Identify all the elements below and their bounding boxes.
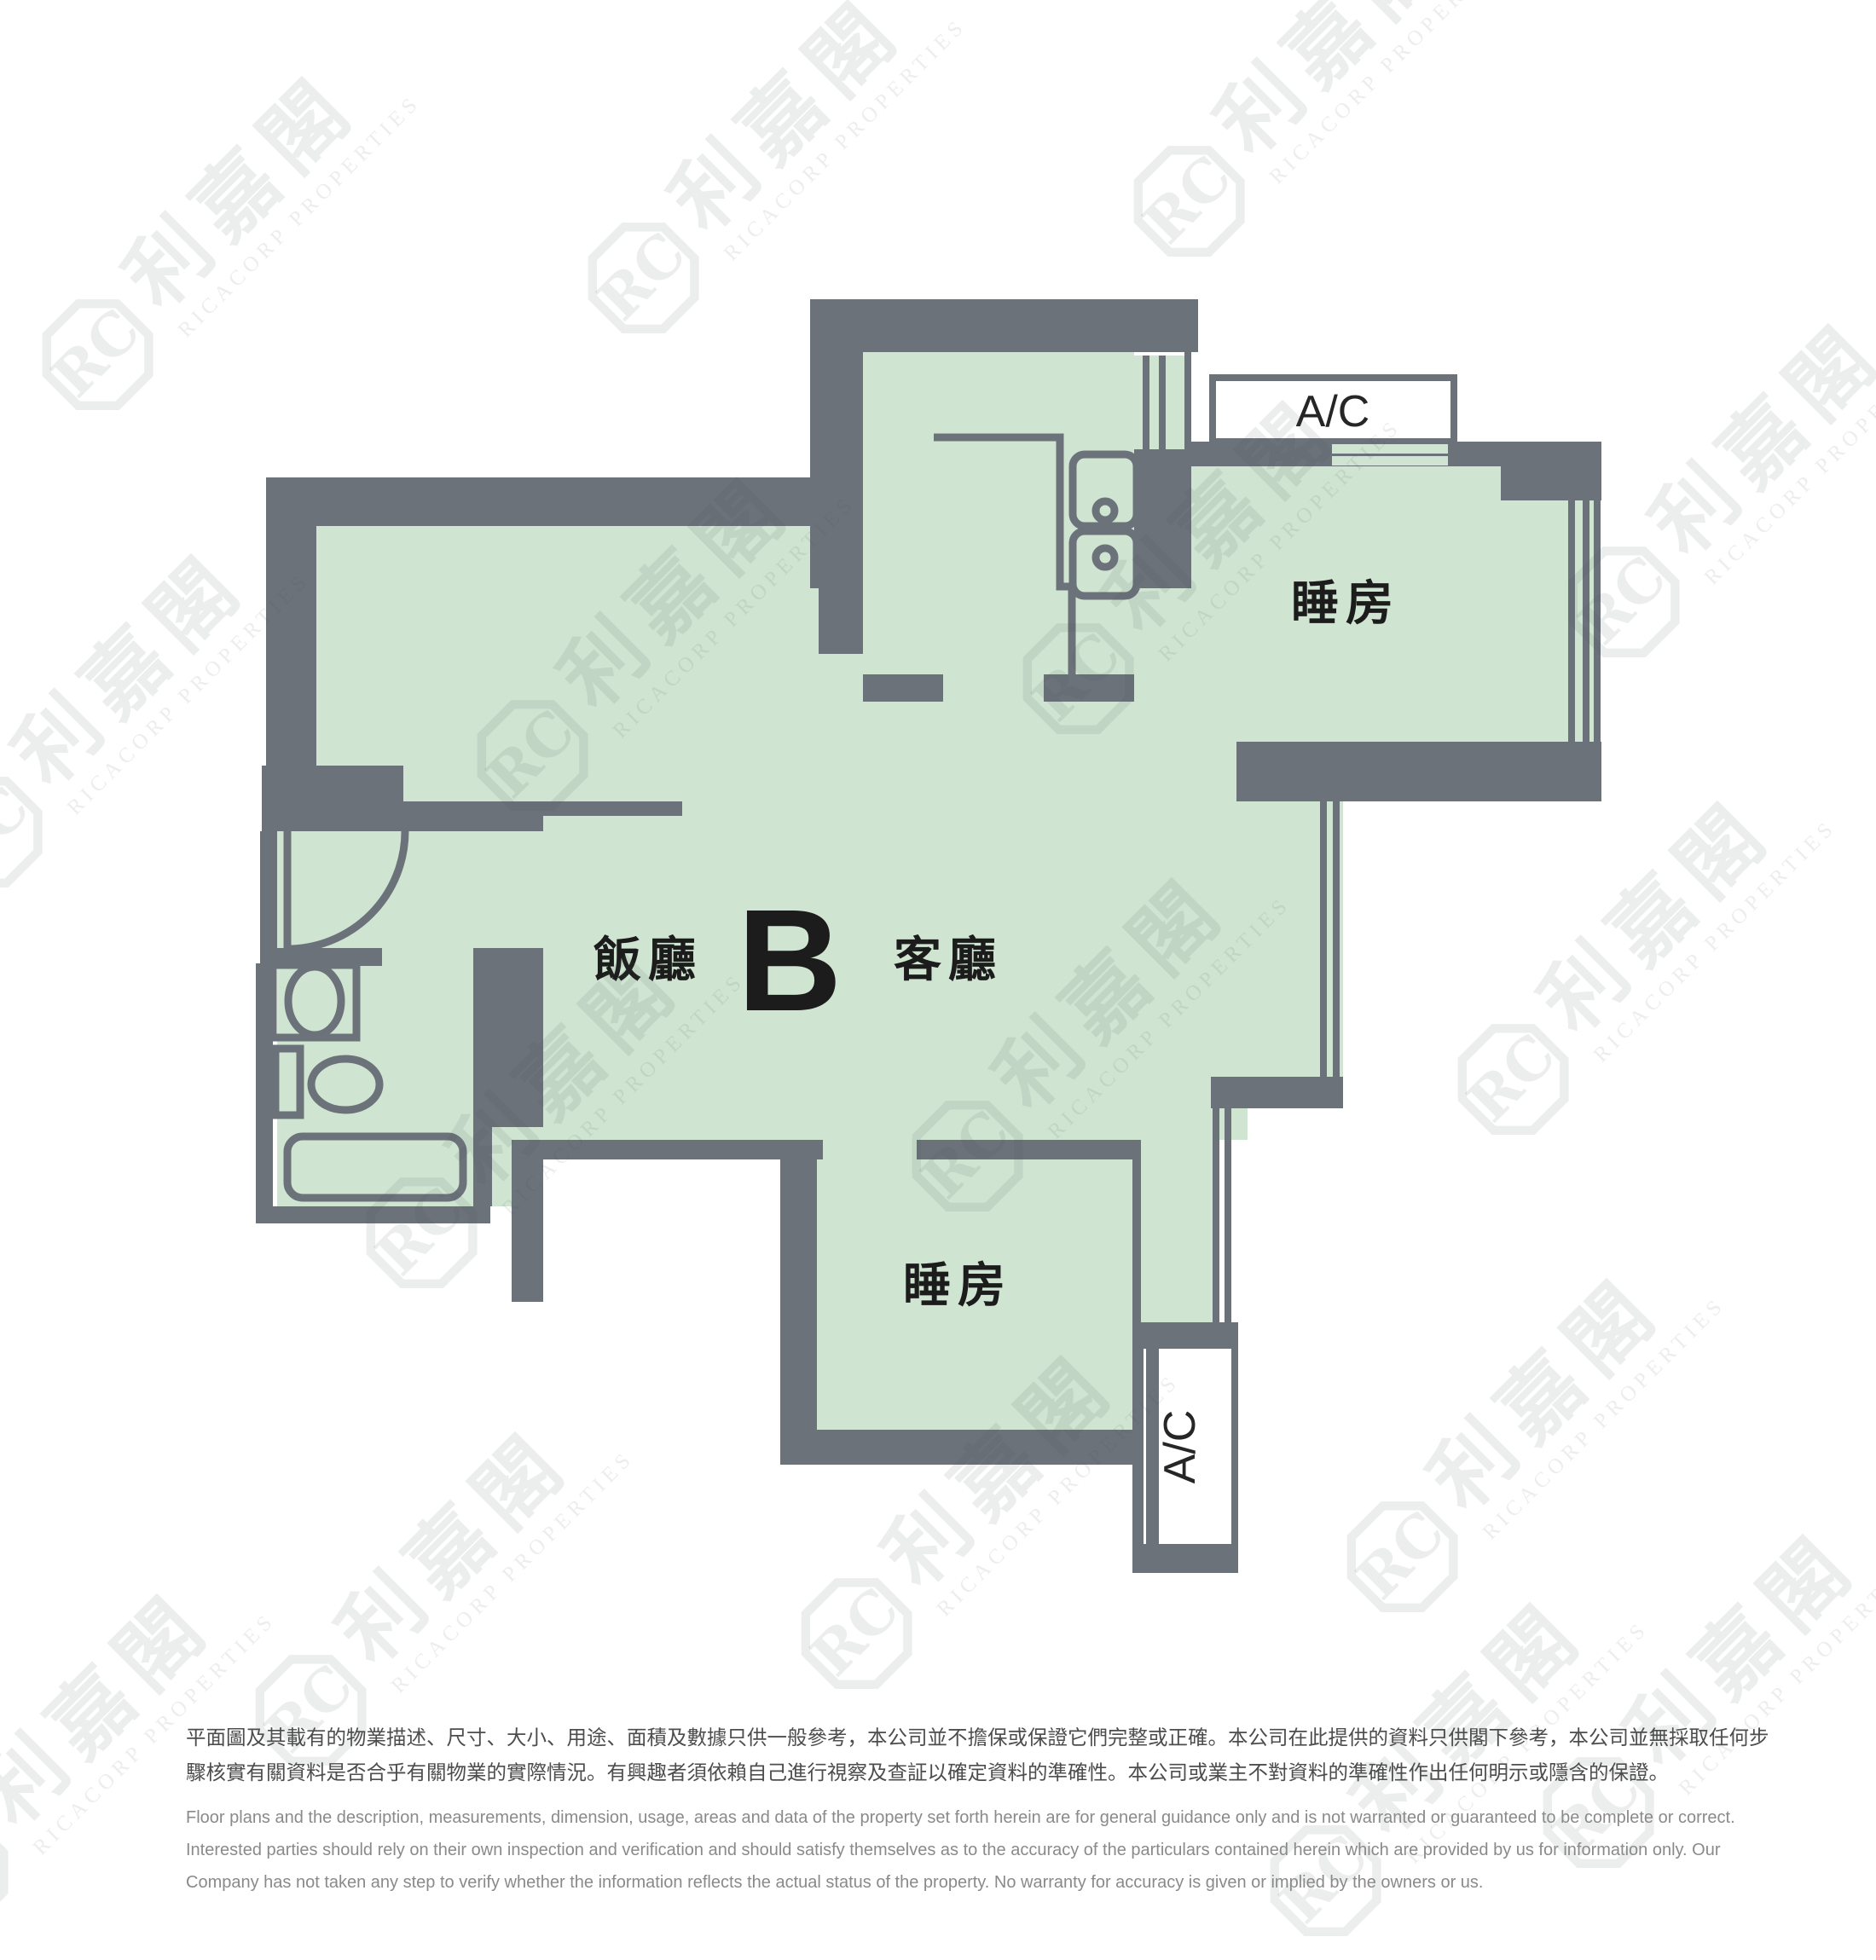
wall-bedroom-bottom-top [917,1140,1141,1159]
wall-ac-bottom [1132,1547,1238,1573]
wall-kitchen-bottom-right [1044,674,1134,702]
bedroom-bottom-doorway-floor [823,1140,917,1159]
disclaimer-zh-line2: 驟核實有關資料是否合乎有關物業的實際情況。有興趣者須依賴自己進行視察及查証以確定… [186,1755,1769,1790]
disclaimer-en-line1: Floor plans and the description, measure… [186,1801,1769,1834]
wall-dining-top [266,477,863,526]
wall-bathroom-column [473,948,543,1127]
wall-bedroom-bottom-bottom [780,1430,1141,1465]
wall-kitchen-right [1134,449,1191,588]
wall-kitchen-bottom-left [863,674,943,702]
wall-left-mid [260,831,277,951]
disclaimer-en-line3: Company has not taken any step to verify… [186,1866,1769,1899]
bathroom-floor [277,963,473,1206]
wall-baywindow-top [1501,466,1601,500]
dining-room-label: 飯廳 [593,933,703,988]
bedroom-top-doorway-floor [1191,742,1236,801]
disclaimer: 平面圖及其載有的物業描述、尺寸、大小、用途、面積及數據只供一般參考，本公司並不擔… [186,1720,1769,1899]
wall-bedroom-top-bottom [1236,742,1601,801]
floorplan-drawing: 飯廳 B 客廳 睡房 睡房 A/C A/C [0,0,1876,1876]
wall-entrance-mid [403,801,543,831]
wall-entrance [262,766,403,831]
disclaimer-zh-line1: 平面圖及其載有的物業描述、尺寸、大小、用途、面積及數據只供一般參考，本公司並不擔… [186,1720,1769,1755]
disclaimer-en-line2: Interested parties should rely on their … [186,1834,1769,1866]
wall-kitchen-left [810,299,863,588]
wall-bathroom-bottom [256,1206,490,1223]
wall-bedroom-bottom-bay [1132,1157,1141,1322]
bedroom-bottom-baywindow-floor [1141,1108,1213,1322]
ac-bottom-label: A/C [1155,1410,1205,1484]
floorplan-page: { "floorplan": { "unit_label": "B", "din… [0,0,1876,1876]
wall-column-lower [512,1140,543,1302]
unit-label: B [738,880,842,1042]
foyer-floor [277,831,316,951]
living-room-label: 客廳 [894,933,1003,988]
ac-top-label: A/C [1296,387,1370,437]
wall-kitchen-left-lower [819,588,863,654]
ac-louvre-bar [1332,456,1448,465]
wall-living-bay-bottom [1211,1077,1343,1108]
wall-kitchen-top [810,299,1198,352]
ac-louvre-bar [1332,444,1448,454]
bedroom-top-label: 睡房 [1291,576,1400,632]
bedroom-bottom-label: 睡房 [903,1258,1012,1314]
living-baywindow-floor [1248,801,1343,1077]
wall-entrance-beam [543,801,682,816]
wall-bedroom-bottom-left [780,1140,817,1465]
